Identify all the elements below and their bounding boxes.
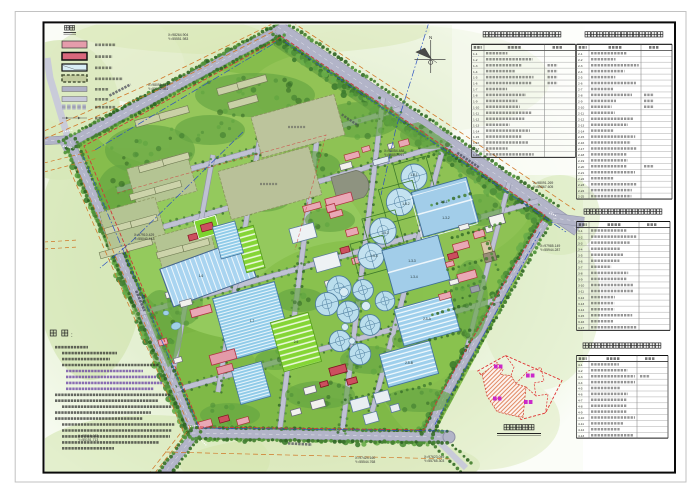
svg-text:1-8: 1-8 [473,94,478,98]
svg-text:2-12: 2-12 [578,117,584,121]
svg-text:Y=55765.303: Y=55765.303 [424,459,444,463]
svg-text:4-3: 4-3 [578,375,583,379]
svg-text:3-12: 3-12 [578,296,584,300]
svg-text:1-3-1: 1-3-1 [440,200,448,204]
svg-text:1-3-4: 1-3-4 [410,275,418,279]
svg-text:2-5: 2-5 [578,76,583,80]
svg-text:1-4: 1-4 [473,70,478,74]
svg-text:1-1: 1-1 [473,52,478,56]
svg-text:1-5: 1-5 [473,76,478,80]
svg-text:1-10: 1-10 [473,105,479,109]
svg-text:4-4: 4-4 [578,381,583,385]
svg-text:Y=55867.605: Y=55867.605 [533,185,553,189]
svg-text:2-18: 2-18 [578,153,584,157]
svg-text:1-9: 1-9 [473,100,478,104]
svg-text:1-8-1: 1-8-1 [410,173,418,177]
svg-text:2-19: 2-19 [578,159,584,163]
svg-text:2-3: 2-3 [578,64,583,68]
svg-text:Y=55944.287: Y=55944.287 [540,248,560,252]
svg-text:4-8: 4-8 [578,404,583,408]
svg-text:2-25: 2-25 [578,195,584,199]
svg-text:4-11: 4-11 [578,422,584,426]
svg-text:2-24: 2-24 [578,189,584,193]
svg-text:2-2: 2-2 [578,58,583,62]
svg-text:4-6: 4-6 [578,393,583,397]
svg-text:2-15: 2-15 [578,135,584,139]
svg-text:3-8: 3-8 [578,272,583,276]
svg-text:N: N [429,35,432,40]
svg-text:3-6: 3-6 [578,259,583,263]
svg-text:1-14: 1-14 [473,129,479,133]
svg-text:1-6: 1-6 [473,82,478,86]
svg-text:Y=55551.983: Y=55551.983 [168,37,188,41]
svg-text:3-4: 3-4 [578,247,583,251]
svg-text:1-2: 1-2 [473,58,478,62]
svg-text:2-21: 2-21 [578,171,584,175]
svg-text:4-9: 4-9 [578,410,583,414]
svg-text:1-6: 1-6 [199,274,204,278]
svg-text:2-1: 2-1 [578,52,583,56]
svg-text:1-3-3: 1-3-3 [408,259,416,263]
svg-text:2-13: 2-13 [578,123,584,127]
svg-text:2-17: 2-17 [578,147,584,151]
svg-text:1-13: 1-13 [473,123,479,127]
svg-text:2-9: 2-9 [294,340,299,344]
svg-text:3-3: 3-3 [578,241,583,245]
svg-text:1-15: 1-15 [473,135,479,139]
svg-text:1-18: 1-18 [473,153,479,157]
svg-text:3-9: 3-9 [578,278,583,282]
svg-text:2-14: 2-14 [578,129,584,133]
svg-text:3-14: 3-14 [578,308,584,312]
svg-text:Y=55544.768: Y=55544.768 [355,460,375,464]
svg-text:3-1: 3-1 [578,229,583,233]
svg-text:2-9: 2-9 [578,100,583,104]
svg-text:1-5-4: 1-5-4 [370,254,378,258]
svg-text:2-5-B: 2-5-B [405,361,413,365]
svg-text:2-8: 2-8 [578,94,583,98]
svg-text:4-7: 4-7 [578,399,583,403]
svg-text:4-10: 4-10 [578,416,584,420]
svg-text:Y=55292.981: Y=55292.981 [148,87,168,91]
svg-text:3-17: 3-17 [578,326,584,330]
svg-text:3-15: 3-15 [578,314,584,318]
svg-text:3-10: 3-10 [578,284,584,288]
svg-text:1-17: 1-17 [473,147,479,151]
svg-text:2-11: 2-11 [578,111,584,115]
svg-text:3-2: 3-2 [578,235,583,239]
svg-text:3-7: 3-7 [578,266,583,270]
svg-text:2-6: 2-6 [578,82,583,86]
svg-text:3-13: 3-13 [578,302,584,306]
svg-text:2-5-A: 2-5-A [423,317,432,321]
svg-text:4-13: 4-13 [578,434,584,438]
svg-text:1-11: 1-11 [473,111,479,115]
svg-text:2-7: 2-7 [578,88,583,92]
svg-text:2-22: 2-22 [578,177,584,181]
svg-text:1-3-2: 1-3-2 [442,216,450,220]
svg-text:1-3: 1-3 [473,64,478,68]
svg-text:2-20: 2-20 [578,165,584,169]
svg-text:2-16: 2-16 [578,141,584,145]
svg-text:3-11: 3-11 [578,290,584,294]
svg-text:3-5: 3-5 [578,253,583,257]
svg-text:1-8-2: 1-8-2 [402,202,410,206]
svg-text:2-23: 2-23 [578,183,584,187]
svg-text:2-4: 2-4 [578,70,583,74]
svg-text:1-12: 1-12 [473,117,479,121]
svg-text:4-2: 4-2 [578,369,583,373]
svg-text:4-12: 4-12 [578,428,584,432]
svg-text:1-7: 1-7 [250,319,255,323]
svg-text:2-10: 2-10 [578,105,584,109]
svg-text:Y=55857.767: Y=55857.767 [384,153,404,157]
svg-text:4-5: 4-5 [578,387,583,391]
svg-text:1-5-3: 1-5-3 [381,231,389,235]
svg-text:1-16: 1-16 [473,141,479,145]
svg-text:3-16: 3-16 [578,320,584,324]
svg-text:1-7: 1-7 [473,88,478,92]
svg-text:4-1: 4-1 [578,363,583,367]
svg-text:Y=55040.442: Y=55040.442 [134,237,154,241]
